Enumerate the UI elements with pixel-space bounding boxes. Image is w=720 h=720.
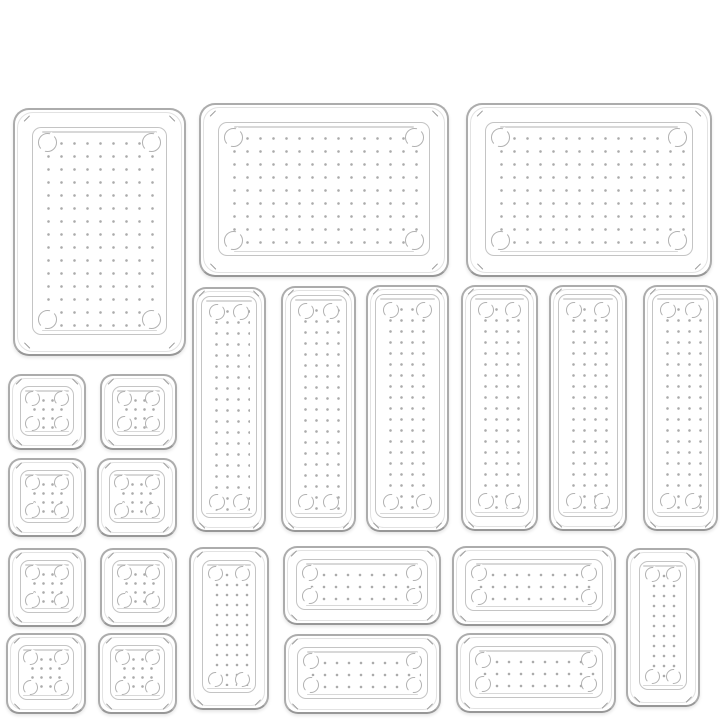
foot-circle bbox=[38, 133, 57, 152]
foot-circle bbox=[38, 310, 57, 329]
foot-circle-notch bbox=[237, 683, 243, 688]
corner-tick bbox=[432, 263, 439, 270]
tray-floor bbox=[290, 295, 347, 518]
foot-circle-notch bbox=[662, 314, 668, 319]
corner-tick bbox=[14, 703, 21, 710]
foot-circle-notch bbox=[216, 565, 222, 570]
corner-tick bbox=[427, 638, 434, 645]
foot-circle-notch bbox=[392, 301, 398, 306]
corner-tick bbox=[436, 522, 443, 529]
foot-circle bbox=[581, 676, 597, 692]
tray-floor bbox=[109, 470, 165, 523]
foot-circle-notch bbox=[56, 661, 62, 666]
foot-circle-notch bbox=[218, 303, 224, 308]
foot-circle-notch bbox=[484, 675, 490, 680]
foot-circle-notch bbox=[603, 492, 609, 497]
corner-tick bbox=[163, 703, 170, 710]
tray-floor bbox=[652, 294, 709, 517]
corner-tick bbox=[163, 552, 170, 559]
corner-tick bbox=[106, 637, 113, 644]
foot-circle-notch bbox=[117, 661, 123, 666]
corner-tick bbox=[602, 615, 609, 622]
corner-tick bbox=[72, 378, 79, 385]
foot-circle-notch bbox=[62, 564, 68, 569]
corner-tick bbox=[210, 110, 217, 117]
foot-circle-notch bbox=[210, 683, 216, 688]
foot-circle-notch bbox=[125, 415, 131, 420]
foot-circle bbox=[416, 494, 432, 510]
foot-circle-notch bbox=[507, 505, 513, 510]
dot-grid bbox=[472, 566, 596, 604]
corner-tick bbox=[163, 616, 170, 623]
corner-tick bbox=[525, 521, 532, 528]
foot-circle-notch bbox=[153, 564, 159, 569]
foot-circle bbox=[668, 128, 687, 147]
foot-circle-notch bbox=[325, 315, 331, 320]
foot-circle-notch bbox=[147, 402, 153, 407]
tray-square-row3-col1 bbox=[8, 548, 86, 627]
foot-circle bbox=[54, 680, 69, 695]
foot-circle-notch bbox=[62, 649, 68, 654]
foot-circle-notch bbox=[583, 577, 589, 582]
foot-circle bbox=[114, 503, 129, 518]
tray-floor bbox=[375, 294, 440, 518]
foot-circle-notch bbox=[583, 688, 589, 693]
corner-tick bbox=[16, 552, 23, 559]
foot-circle bbox=[117, 416, 132, 431]
foot-circle-notch bbox=[153, 415, 159, 420]
foot-circle-notch bbox=[147, 514, 153, 519]
corner-tick bbox=[255, 551, 262, 558]
foot-circle-notch bbox=[119, 576, 125, 581]
foot-circle-notch bbox=[325, 506, 331, 511]
corner-tick bbox=[72, 462, 79, 469]
tray-tall-5 bbox=[549, 285, 627, 531]
corner-tick bbox=[292, 638, 299, 645]
dot-grid bbox=[208, 303, 250, 511]
corner-tick bbox=[436, 288, 443, 295]
foot-circle-notch bbox=[243, 671, 249, 676]
foot-circle bbox=[145, 503, 160, 518]
tray-large-wide-center bbox=[199, 103, 449, 277]
foot-circle-notch bbox=[415, 652, 421, 657]
foot-circle-notch bbox=[117, 691, 123, 696]
foot-circle-notch bbox=[653, 668, 659, 673]
foot-circle-notch bbox=[503, 230, 509, 235]
foot-circle bbox=[233, 304, 249, 320]
foot-circle bbox=[594, 493, 610, 509]
foot-circle-notch bbox=[27, 427, 33, 432]
tray-medium-vertical-right bbox=[626, 548, 700, 707]
corner-tick bbox=[477, 110, 484, 117]
tray-floor bbox=[110, 645, 165, 700]
foot-circle-notch bbox=[415, 564, 421, 569]
corner-tick bbox=[343, 289, 350, 296]
foot-circle-notch bbox=[668, 680, 674, 685]
foot-circle-notch bbox=[27, 576, 33, 581]
tray-floor bbox=[18, 645, 74, 700]
foot-circle bbox=[581, 565, 597, 581]
foot-circle bbox=[208, 566, 223, 581]
foot-circle-notch bbox=[211, 316, 217, 321]
foot-circle-notch bbox=[408, 665, 414, 670]
foot-circle bbox=[666, 567, 681, 582]
foot-circle bbox=[145, 475, 160, 490]
foot-circle-notch bbox=[56, 402, 62, 407]
foot-circle bbox=[114, 475, 129, 490]
corner-tick bbox=[163, 439, 170, 446]
corner-tick bbox=[427, 614, 434, 621]
tray-floor bbox=[112, 386, 165, 436]
foot-circle bbox=[235, 566, 250, 581]
corner-tick bbox=[468, 521, 475, 528]
foot-circle-notch bbox=[147, 661, 153, 666]
tray-square-row1-col2 bbox=[100, 374, 177, 450]
dot-grid bbox=[659, 301, 702, 510]
foot-circle-notch bbox=[153, 502, 159, 507]
corner-tick bbox=[24, 115, 31, 122]
foot-circle bbox=[145, 391, 160, 406]
foot-circle-notch bbox=[480, 314, 486, 319]
corner-tick bbox=[427, 550, 434, 557]
foot-circle-notch bbox=[583, 664, 589, 669]
tray-medium-vertical-left bbox=[189, 547, 269, 710]
foot-circle-notch bbox=[147, 576, 153, 581]
foot-circle-notch bbox=[425, 301, 431, 306]
foot-circle-notch bbox=[144, 325, 150, 330]
foot-circle-notch bbox=[62, 502, 68, 507]
corner-tick bbox=[108, 616, 115, 623]
foot-circle bbox=[302, 588, 318, 604]
dot-grid bbox=[303, 566, 421, 603]
foot-circle-notch bbox=[33, 390, 39, 395]
foot-circle-notch bbox=[407, 143, 413, 148]
corner-tick bbox=[108, 439, 115, 446]
dot-grid bbox=[646, 568, 680, 683]
foot-circle bbox=[235, 672, 250, 687]
dot-grid bbox=[304, 654, 421, 692]
foot-circle bbox=[406, 588, 422, 604]
foot-circle bbox=[142, 310, 161, 329]
tray-floor bbox=[297, 647, 428, 699]
tray-square-row3-col2 bbox=[100, 548, 177, 627]
corner-tick bbox=[460, 615, 467, 622]
tray-square-row4-col1 bbox=[6, 633, 86, 714]
foot-circle bbox=[25, 391, 40, 406]
foot-circle bbox=[54, 650, 69, 665]
foot-circle-notch bbox=[669, 301, 675, 306]
corner-tick bbox=[16, 616, 23, 623]
foot-circle bbox=[54, 503, 69, 518]
foot-circle-notch bbox=[493, 246, 499, 251]
tray-square-row2-col2 bbox=[97, 458, 177, 537]
foot-circle-notch bbox=[33, 502, 39, 507]
foot-circle bbox=[54, 416, 69, 431]
foot-circle bbox=[405, 231, 424, 250]
foot-circle bbox=[323, 494, 339, 510]
dot-grid bbox=[225, 129, 423, 249]
foot-circle bbox=[660, 302, 676, 318]
corner-tick bbox=[292, 703, 299, 710]
corner-tick bbox=[432, 110, 439, 117]
foot-circle-notch bbox=[653, 566, 659, 571]
corner-tick bbox=[373, 522, 380, 529]
foot-circle-notch bbox=[418, 506, 424, 511]
foot-circle-notch bbox=[27, 514, 33, 519]
foot-circle-notch bbox=[56, 576, 62, 581]
foot-circle-notch bbox=[477, 664, 483, 669]
foot-circle bbox=[117, 593, 132, 608]
corner-tick bbox=[199, 290, 206, 297]
dot-grid bbox=[477, 301, 522, 510]
tray-floor bbox=[20, 560, 74, 613]
dot-grid bbox=[209, 567, 249, 686]
tray-floor bbox=[639, 561, 687, 690]
foot-circle-notch bbox=[237, 577, 243, 582]
foot-circle-notch bbox=[125, 592, 131, 597]
foot-circle-notch bbox=[27, 604, 33, 609]
foot-circle bbox=[224, 128, 243, 147]
tray-tall-3 bbox=[366, 285, 449, 532]
foot-circle-notch bbox=[218, 493, 224, 498]
foot-circle bbox=[25, 416, 40, 431]
tray-medium-wide-bottom-right bbox=[456, 633, 616, 713]
corner-tick bbox=[614, 288, 621, 295]
tray-square-row1-col1 bbox=[8, 374, 86, 450]
foot-circle-notch bbox=[603, 301, 609, 306]
corner-tick bbox=[163, 526, 170, 533]
foot-circle-notch bbox=[408, 577, 414, 582]
foot-circle bbox=[581, 652, 597, 668]
foot-circle-notch bbox=[226, 143, 232, 148]
foot-circle bbox=[233, 494, 249, 510]
foot-circle-notch bbox=[417, 127, 423, 132]
tray-floor bbox=[558, 294, 618, 517]
foot-circle-notch bbox=[385, 506, 391, 511]
foot-circle-notch bbox=[568, 505, 574, 510]
foot-circle-notch bbox=[56, 486, 62, 491]
tray-tall-4 bbox=[461, 285, 538, 531]
foot-circle-notch bbox=[116, 486, 122, 491]
corner-tick bbox=[24, 342, 31, 349]
foot-circle-notch bbox=[514, 492, 520, 497]
foot-circle-notch bbox=[493, 143, 499, 148]
foot-circle bbox=[660, 493, 676, 509]
foot-circle-notch bbox=[147, 486, 153, 491]
corner-tick bbox=[525, 288, 532, 295]
foot-circle bbox=[208, 672, 223, 687]
foot-circle bbox=[406, 653, 422, 669]
foot-circle-notch bbox=[235, 316, 241, 321]
tray-floor bbox=[218, 122, 430, 256]
foot-circle-notch bbox=[27, 486, 33, 491]
foot-circle-notch bbox=[123, 679, 129, 684]
foot-circle-notch bbox=[417, 230, 423, 235]
foot-circle-notch bbox=[647, 680, 653, 685]
foot-circle bbox=[478, 302, 494, 318]
foot-circle bbox=[383, 494, 399, 510]
foot-circle-notch bbox=[119, 402, 125, 407]
foot-circle-notch bbox=[154, 132, 160, 137]
foot-circle bbox=[406, 565, 422, 581]
foot-circle bbox=[685, 493, 701, 509]
foot-circle-notch bbox=[25, 661, 31, 666]
tray-large-portrait bbox=[13, 108, 186, 356]
foot-circle-notch bbox=[62, 415, 68, 420]
foot-circle bbox=[117, 391, 132, 406]
foot-circle bbox=[478, 493, 494, 509]
foot-circle bbox=[25, 593, 40, 608]
foot-circle bbox=[54, 475, 69, 490]
foot-circle-notch bbox=[332, 302, 338, 307]
foot-circle-notch bbox=[415, 676, 421, 681]
foot-circle-notch bbox=[147, 691, 153, 696]
foot-circle-notch bbox=[680, 127, 686, 132]
foot-circle-notch bbox=[503, 127, 509, 132]
corner-tick bbox=[705, 521, 712, 528]
foot-circle-notch bbox=[575, 301, 581, 306]
foot-circle-notch bbox=[33, 474, 39, 479]
foot-circle bbox=[54, 391, 69, 406]
foot-circle bbox=[645, 567, 660, 582]
foot-circle bbox=[668, 231, 687, 250]
foot-circle-notch bbox=[300, 315, 306, 320]
corner-tick bbox=[288, 289, 295, 296]
dot-grid bbox=[476, 653, 596, 691]
foot-circle-notch bbox=[242, 303, 248, 308]
foot-circle-notch bbox=[147, 604, 153, 609]
foot-circle-notch bbox=[480, 564, 486, 569]
foot-circle-notch bbox=[235, 506, 241, 511]
foot-circle bbox=[145, 593, 160, 608]
tray-floor bbox=[296, 559, 428, 610]
foot-circle bbox=[566, 302, 582, 318]
foot-circle-notch bbox=[408, 689, 414, 694]
tray-square-row4-col2 bbox=[98, 633, 177, 714]
foot-circle-notch bbox=[62, 390, 68, 395]
corner-tick bbox=[468, 288, 475, 295]
tray-tall-1 bbox=[192, 287, 266, 532]
foot-circle-notch bbox=[125, 564, 131, 569]
foot-circle bbox=[115, 680, 130, 695]
corner-tick bbox=[288, 522, 295, 529]
foot-circle-notch bbox=[40, 148, 46, 153]
corner-tick bbox=[253, 290, 260, 297]
tray-floor bbox=[469, 646, 603, 698]
tray-floor bbox=[485, 122, 693, 256]
foot-circle-notch bbox=[694, 492, 700, 497]
foot-circle-notch bbox=[668, 578, 674, 583]
corner-tick bbox=[650, 288, 657, 295]
foot-circle bbox=[491, 231, 510, 250]
foot-circle-notch bbox=[62, 679, 68, 684]
foot-circle-notch bbox=[116, 514, 122, 519]
corner-tick bbox=[199, 522, 206, 529]
corner-tick bbox=[614, 521, 621, 528]
foot-circle bbox=[303, 653, 319, 669]
corner-tick bbox=[16, 462, 23, 469]
corner-tick bbox=[705, 288, 712, 295]
tray-square-row2-col1 bbox=[8, 458, 86, 537]
corner-tick bbox=[634, 696, 641, 703]
foot-circle-notch bbox=[477, 688, 483, 693]
corner-tick bbox=[602, 637, 609, 644]
dot-grid bbox=[39, 134, 160, 328]
corner-tick bbox=[556, 288, 563, 295]
foot-circle bbox=[581, 589, 597, 605]
foot-circle bbox=[323, 303, 339, 319]
foot-circle-notch bbox=[153, 649, 159, 654]
corner-tick bbox=[169, 115, 176, 122]
foot-circle-notch bbox=[674, 566, 680, 571]
corner-tick bbox=[16, 378, 23, 385]
foot-circle-notch bbox=[50, 132, 56, 137]
foot-circle-notch bbox=[50, 309, 56, 314]
corner-tick bbox=[169, 342, 176, 349]
corner-tick bbox=[72, 616, 79, 623]
foot-circle bbox=[475, 652, 491, 668]
corner-tick bbox=[464, 702, 471, 709]
foot-circle bbox=[145, 680, 160, 695]
foot-circle-notch bbox=[119, 427, 125, 432]
foot-circle-notch bbox=[242, 493, 248, 498]
corner-tick bbox=[602, 702, 609, 709]
foot-circle bbox=[302, 565, 318, 581]
foot-circle-notch bbox=[480, 588, 486, 593]
tray-floor bbox=[20, 386, 74, 436]
foot-circle bbox=[406, 677, 422, 693]
corner-tick bbox=[477, 263, 484, 270]
foot-circle bbox=[298, 494, 314, 510]
foot-circle-notch bbox=[647, 578, 653, 583]
foot-circle-notch bbox=[473, 601, 479, 606]
corner-tick bbox=[253, 522, 260, 529]
foot-circle-notch bbox=[514, 301, 520, 306]
foot-circle-notch bbox=[583, 601, 589, 606]
foot-circle-notch bbox=[56, 514, 62, 519]
corner-tick bbox=[72, 552, 79, 559]
tray-medium-wide-top-right bbox=[452, 546, 616, 626]
tray-tall-6 bbox=[643, 285, 718, 531]
foot-circle-notch bbox=[418, 314, 424, 319]
foot-circle-notch bbox=[590, 675, 596, 680]
foot-circle-notch bbox=[669, 492, 675, 497]
foot-circle-notch bbox=[300, 506, 306, 511]
foot-circle bbox=[298, 303, 314, 319]
foot-circle bbox=[405, 128, 424, 147]
foot-circle-notch bbox=[305, 665, 311, 670]
foot-circle-notch bbox=[568, 314, 574, 319]
foot-circle-notch bbox=[33, 564, 39, 569]
foot-circle bbox=[145, 565, 160, 580]
foot-circle-notch bbox=[236, 127, 242, 132]
organizer-tray-set-photo bbox=[0, 0, 720, 720]
foot-circle-notch bbox=[590, 564, 596, 569]
foot-circle-notch bbox=[27, 402, 33, 407]
foot-circle-notch bbox=[670, 246, 676, 251]
dot-grid bbox=[492, 129, 686, 249]
corner-tick bbox=[556, 521, 563, 528]
corner-tick bbox=[291, 614, 298, 621]
tray-medium-wide-bottom-left bbox=[284, 634, 441, 714]
corner-tick bbox=[72, 637, 79, 644]
corner-tick bbox=[255, 699, 262, 706]
corner-tick bbox=[72, 439, 79, 446]
foot-circle-notch bbox=[56, 604, 62, 609]
foot-circle bbox=[115, 650, 130, 665]
corner-tick bbox=[695, 110, 702, 117]
foot-circle-notch bbox=[392, 493, 398, 498]
